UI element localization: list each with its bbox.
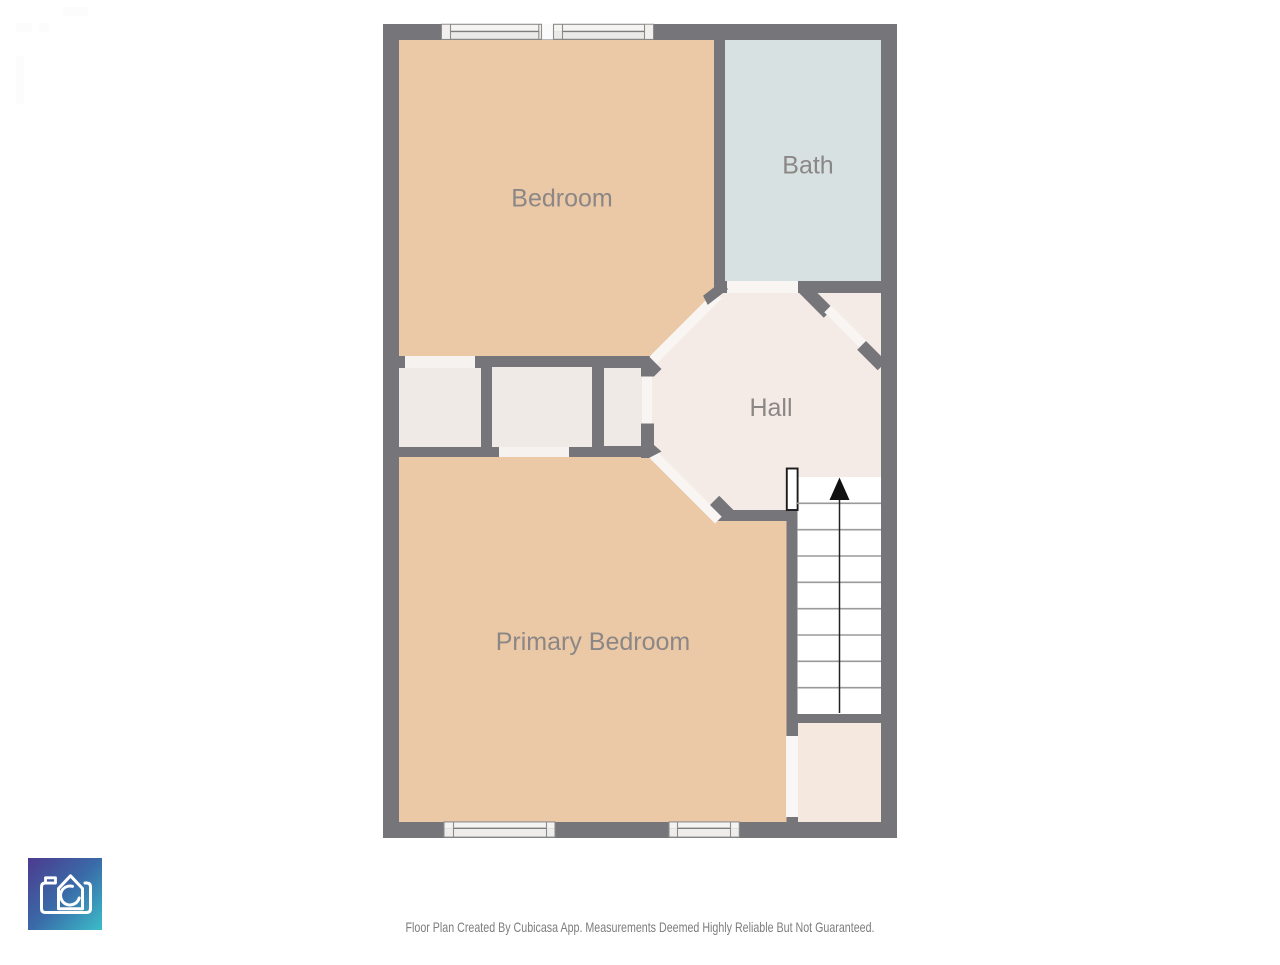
svg-text:Bath: Bath	[782, 152, 833, 180]
svg-text:Bedroom: Bedroom	[511, 185, 612, 213]
svg-text:Hall: Hall	[749, 394, 792, 422]
svg-text:Floor Plan Created By Cubicasa: Floor Plan Created By Cubicasa App. Meas…	[406, 919, 875, 935]
svg-text:Primary Bedroom: Primary Bedroom	[496, 628, 691, 656]
